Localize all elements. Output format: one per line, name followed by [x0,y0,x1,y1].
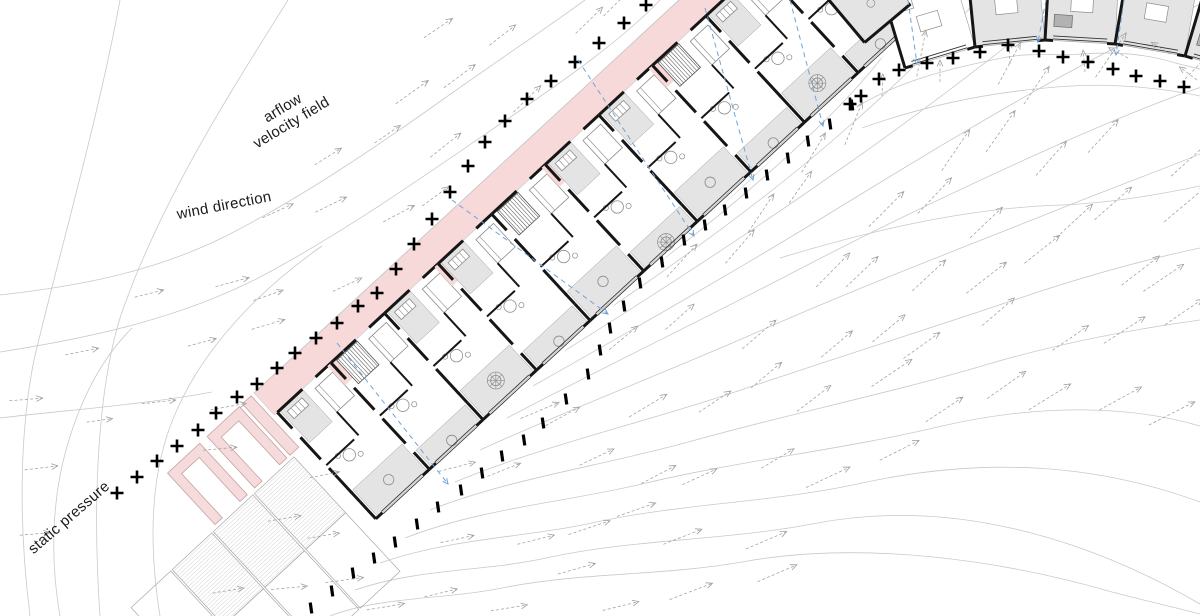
streamline [54,328,132,616]
plus-marker [1107,63,1120,76]
minus-marker [500,450,505,461]
flow-arrow-shaft [912,260,945,291]
flow-arrow-shaft [1036,141,1067,176]
flow-arrow-shaft [748,194,773,232]
flow-arrow-shaft [489,25,515,45]
flow-arrow-shaft [375,125,401,143]
flow-arrow-shaft [315,197,346,212]
upper-furniture [995,0,1019,15]
flow-arrow-head [1135,387,1142,393]
minus-marker [622,300,627,311]
plus-marker [873,73,886,86]
upper-facade-stub [1115,44,1123,45]
minus-marker [522,434,527,445]
flow-arrow-shaft [846,257,878,288]
plus-marker [171,440,184,453]
flow-arrow-shaft [1179,67,1197,80]
flow-arrow-head [335,148,342,154]
flow-arrow-shaft [1056,204,1092,237]
minus-marker [765,169,770,180]
flow-arrow-shaft [872,359,912,386]
flow-arrow-shaft [987,371,1026,398]
flow-arrow-head [790,565,797,570]
flow-arrow-shaft [742,320,776,349]
flow-arrow-shaft [880,440,919,460]
streamline [405,410,1200,538]
flow-arrow-shaft [1143,264,1183,291]
upper-furniture [1071,0,1094,13]
flow-arrow-head [1138,317,1145,323]
flow-arrow-shaft [641,466,676,484]
minus-marker [393,536,398,547]
flow-arrow-shaft [558,563,596,574]
flow-arrow-head [846,331,853,337]
flow-arrow-shaft [802,133,826,172]
flow-arrow-shaft [604,0,633,16]
flow-arrow-shaft [439,462,476,471]
minus-marker [309,602,314,613]
streamline [0,392,212,418]
wind-direction-label: wind direction [174,188,272,223]
flow-arrow-shaft [1053,326,1089,351]
streamline [862,85,1200,128]
flow-arrow-shaft [869,192,904,227]
minus-marker [480,467,485,478]
flow-arrow-shaft [315,148,342,165]
flow-arrow-shaft [1122,256,1160,285]
flow-arrow-shaft [576,7,603,33]
flow-arrow-shaft [746,532,787,549]
flow-arrow-shaft [1024,235,1059,263]
minus-marker [564,393,569,404]
plus-marker [855,90,868,103]
flow-arrow-head [706,583,713,588]
flow-arrow-shaft [609,326,637,350]
flow-arrow-shaft [670,583,713,599]
flow-arrow-shaft [580,449,614,465]
flow-arrow-shaft [926,397,963,422]
flow-arrow-shaft [487,463,520,476]
flow-arrow-head [787,449,794,455]
flow-arrow-shaft [1149,402,1195,425]
plus-marker [1154,75,1167,88]
flow-arrow-head [820,133,826,140]
plus-marker [593,37,606,50]
flow-arrow-head [1188,402,1195,408]
minus-marker [415,518,420,529]
flow-arrow-shaft [1088,120,1118,153]
flow-arrow-head [1019,371,1026,377]
flow-arrow-shaft [444,65,475,88]
minus-marker [330,585,335,596]
flow-arrow-shaft [1029,384,1071,410]
flow-arrow-head [514,463,521,468]
flow-arrow-head [1196,299,1200,305]
flow-arrow-shaft [325,578,363,583]
flow-arrow-shaft [682,469,717,485]
plus-marker [618,17,631,30]
airflow-velocity-field-label: arflowvelocity field [241,79,332,152]
flow-arrow-head [106,417,113,423]
flow-arrow-shaft [758,565,797,582]
flow-arrow-shaft [998,43,1020,85]
flow-arrow-shaft [517,535,554,544]
flow-arrow-shaft [966,262,1006,293]
flow-arrow-shaft [87,419,113,423]
flow-arrow-shaft [383,205,414,222]
plus-marker [499,115,512,128]
minus-marker [806,135,811,146]
flow-arrow-shaft [725,230,754,263]
flow-arrow-shaft [761,449,794,468]
flow-arrow-shaft [424,18,453,37]
flow-arrow-head [276,290,283,295]
flow-arrow-shaft [903,333,939,359]
flow-arrow-shaft [942,130,970,171]
flow-arrow-shaft [546,407,580,426]
minus-marker [436,501,441,512]
flow-arrow-shaft [252,320,285,330]
flow-arrow-head [632,600,639,606]
flow-arrow-shaft [491,605,528,611]
flow-arrow-shaft [333,278,362,292]
airflow-diagram: arflowvelocity field wind direction stat… [0,0,1200,616]
minus-marker [459,484,464,495]
plus-marker [462,160,475,173]
flow-arrow-shaft [396,81,429,104]
flow-arrow-shaft [663,529,702,544]
flow-arrow-shaft [918,178,952,214]
flow-arrow-head [1064,384,1071,390]
flow-arrow-shaft [789,171,811,203]
minus-marker [351,567,356,578]
streamline [330,553,1200,616]
upper-furniture [1144,3,1168,23]
flow-arrow-shaft [1095,187,1132,220]
minus-marker [598,344,603,355]
static-pressure-label: static pressure [25,478,113,558]
flow-arrow-shaft [806,467,850,487]
minus-marker [723,204,728,215]
minus-marker [372,552,377,563]
minus-marker [828,118,833,129]
flow-arrow-shaft [797,386,831,412]
minus-marker [744,187,749,198]
flow-arrow-shaft [521,402,559,418]
plus-marker [210,407,223,420]
flow-arrow-shaft [699,391,731,412]
flow-arrow-shaft [821,331,852,357]
minus-marker [608,322,613,333]
flow-arrow-head [1015,43,1021,50]
flow-arrow-head [552,402,559,407]
flow-arrow-shaft [1099,387,1141,410]
flow-arrow-shaft [422,187,448,206]
flow-arrow-shaft [603,602,639,611]
upper-kitchen [1054,15,1073,28]
plus-marker [1057,51,1070,64]
plus-marker [192,424,205,437]
flow-arrow-head [660,394,667,400]
streamline [355,515,1200,604]
flow-arrow-head [394,125,401,131]
flow-arrow-head [355,278,362,283]
flow-arrow-head [695,529,702,534]
plus-marker [131,471,144,484]
flow-arrow-shaft [629,394,667,417]
flow-arrow-shaft [751,362,782,388]
flow-arrow-shaft [982,298,1014,326]
flow-arrow-shaft [1104,317,1145,344]
plus-marker [1082,56,1095,69]
plus-marker [231,391,244,404]
minus-marker [586,368,591,379]
streamline [380,467,1200,563]
plus-marker [1130,70,1143,83]
site-plan-canvas: arflowvelocity field wind direction stat… [0,0,1200,616]
flow-arrow-head [649,502,656,507]
main-building-strip [253,0,966,525]
flow-arrow-shaft [263,204,293,218]
plus-marker [111,487,124,500]
plus-marker [1033,45,1046,58]
flow-arrow-shaft [1171,143,1200,177]
flow-arrow-shaft [569,521,611,535]
